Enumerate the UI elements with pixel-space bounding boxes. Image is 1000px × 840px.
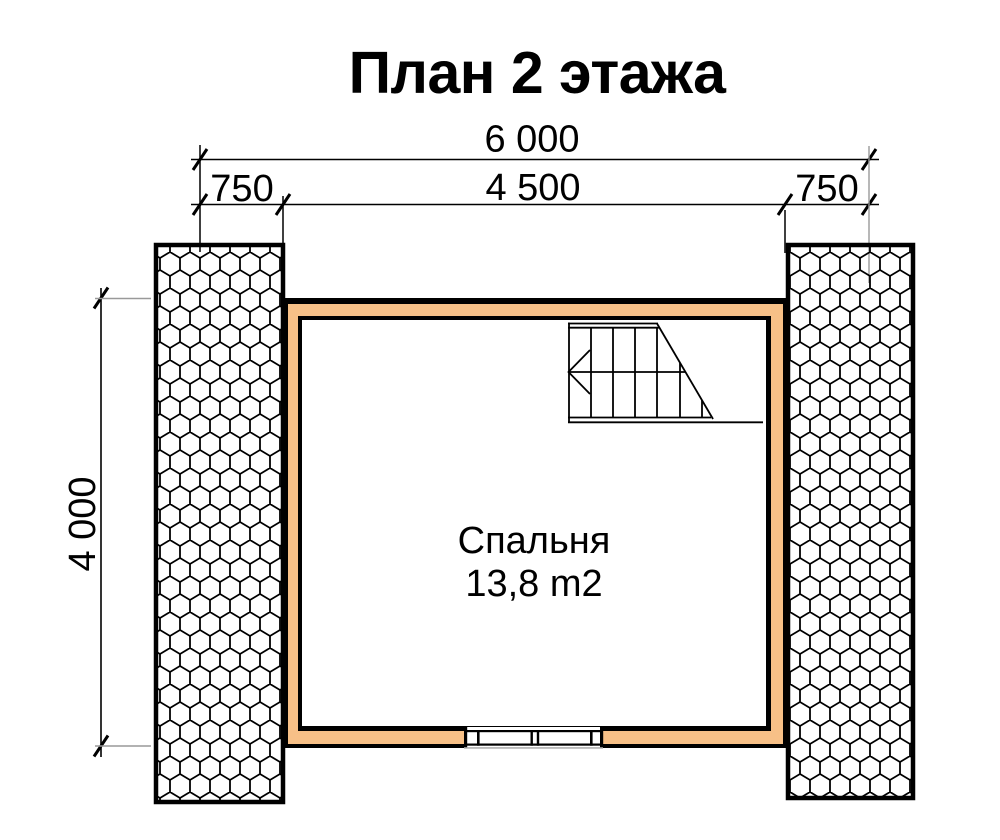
svg-text:План 2 этажа: План 2 этажа	[349, 40, 727, 106]
svg-text:6 000: 6 000	[484, 119, 579, 161]
svg-text:750: 750	[795, 168, 858, 210]
svg-text:4 000: 4 000	[62, 476, 104, 571]
svg-text:4 500: 4 500	[485, 167, 580, 209]
svg-text:13,8 m2: 13,8 m2	[465, 563, 602, 605]
svg-text:Спальня: Спальня	[458, 520, 611, 562]
svg-text:750: 750	[210, 168, 273, 210]
